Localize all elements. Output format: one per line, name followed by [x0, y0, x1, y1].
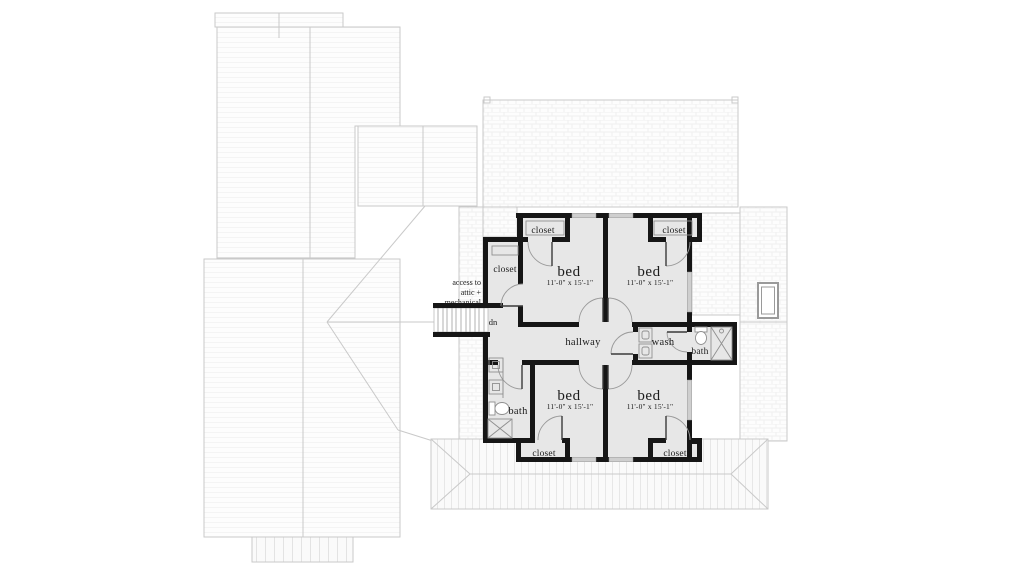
- bed4-dims: 11'-0" x 15'-1": [627, 402, 674, 411]
- window-south-1: [572, 458, 596, 462]
- wall-bed1-west-2: [518, 306, 523, 322]
- wall-closet-br-north-1: [648, 438, 666, 443]
- gable-valley: [398, 430, 433, 441]
- closet-bl-label: closet: [532, 449, 556, 459]
- north-roof: [483, 100, 738, 207]
- wall-hall-south-3: [632, 360, 737, 365]
- attic-note-line2: attic +: [461, 288, 482, 297]
- closet-tr-label: closet: [662, 226, 686, 236]
- attic-access-note: access to attic + mechanical: [445, 278, 482, 307]
- bath-sw-label: bath: [508, 406, 528, 417]
- hallway-label: hallway: [565, 337, 601, 348]
- wall-hall-north-2: [632, 322, 737, 327]
- wall-closet-tl-south-2: [552, 237, 570, 242]
- wall-closet-tr-south-1: [648, 237, 666, 242]
- wall-north-2: [596, 213, 609, 218]
- wall-center-north: [603, 218, 608, 322]
- closet-mw-label: closet: [493, 265, 517, 275]
- northwest-roof-corner: [483, 207, 517, 237]
- wall-east-lower-1: [687, 365, 692, 380]
- floor-plan-drawing: bed 11'-0" x 15'-1" bed 11'-0" x 15'-1" …: [0, 0, 1024, 576]
- bed1-dims: 11'-0" x 15'-1": [547, 278, 594, 287]
- wall-bath-sw-east: [530, 365, 535, 438]
- wall-wash-west-2: [633, 354, 638, 360]
- toilet-e-icon: [695, 327, 707, 345]
- stairwell: [433, 303, 490, 337]
- wall-bed1-west-1: [518, 218, 523, 284]
- wall-west-upper: [483, 237, 488, 303]
- toilet-sw-icon: [489, 402, 509, 415]
- wall-hall-north-1: [518, 322, 579, 327]
- closet-br-label: closet: [663, 449, 687, 459]
- wall-hall-south-1: [483, 360, 498, 365]
- wall-south-2: [596, 457, 609, 462]
- bath-e-label: bath: [691, 347, 708, 357]
- wall-wash-west-1: [633, 322, 638, 332]
- wall-west-lower: [483, 337, 488, 443]
- bed2-dims: 11'-0" x 15'-1": [627, 278, 674, 287]
- stairs-dn-label: dn: [489, 317, 498, 327]
- wall-sw-step-h: [483, 438, 535, 443]
- window-south-2: [609, 458, 633, 462]
- west-lower-roof: [204, 259, 400, 537]
- wall-center-south: [603, 365, 608, 457]
- wall-bath-e-east: [732, 322, 737, 365]
- window-north-2: [609, 214, 633, 218]
- wall-closet-br-north-2: [690, 438, 702, 443]
- wall-east-upper-2: [687, 312, 692, 322]
- bed3-dims: 11'-0" x 15'-1": [547, 402, 594, 411]
- wall-hall-south-2: [522, 360, 579, 365]
- west-wing-roof: [358, 126, 477, 206]
- wall-wash-bath-div-1: [687, 327, 692, 332]
- stair-wall-south: [433, 332, 490, 337]
- wall-closet-bl-north: [562, 438, 570, 443]
- wall-closet-tr-south-2: [690, 237, 702, 242]
- attic-note-line1: access to: [452, 278, 481, 287]
- east-eave-strip: [740, 207, 787, 441]
- west-stoop: [252, 537, 353, 562]
- window-north-1: [572, 214, 596, 218]
- wash-label: wash: [652, 337, 675, 348]
- window-east-bed4: [688, 380, 692, 420]
- attic-note-line3: mechanical: [445, 298, 482, 307]
- window-east-bed2: [688, 272, 692, 312]
- wall-north-1: [516, 213, 572, 218]
- wall-north-3: [633, 213, 702, 218]
- chimney-flue: [762, 287, 775, 314]
- closet-tl-label: closet: [531, 226, 555, 236]
- floor-plan-page: bed 11'-0" x 15'-1" bed 11'-0" x 15'-1" …: [0, 0, 1024, 576]
